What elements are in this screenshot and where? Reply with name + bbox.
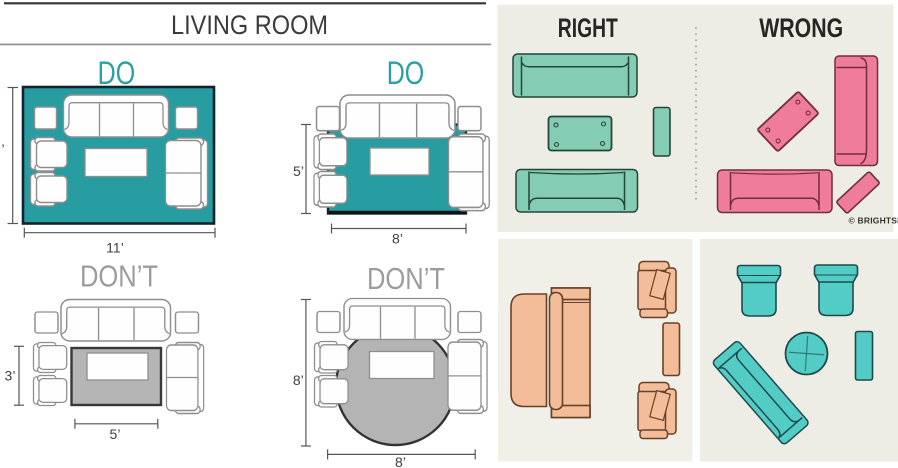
svg-text:WRONG: WRONG: [759, 13, 843, 43]
svg-text:11’: 11’: [106, 240, 124, 256]
svg-text:DON’T: DON’T: [367, 261, 445, 296]
svg-text:8’: 8’: [293, 372, 304, 388]
svg-text:’: ’: [2, 141, 5, 157]
svg-text:8’: 8’: [392, 231, 403, 247]
svg-text:5’: 5’: [293, 163, 304, 179]
svg-text:LIVING ROOM: LIVING ROOM: [171, 10, 328, 40]
svg-text:3’: 3’: [5, 368, 16, 384]
svg-text:8’: 8’: [395, 454, 406, 468]
svg-text:© BRIGHTSIDE: © BRIGHTSIDE: [849, 215, 898, 225]
svg-text:DO: DO: [98, 55, 136, 91]
svg-text:5’: 5’: [110, 426, 121, 442]
svg-text:DO: DO: [387, 55, 425, 91]
svg-text:RIGHT: RIGHT: [558, 13, 618, 43]
svg-text:DON’T: DON’T: [80, 259, 158, 294]
